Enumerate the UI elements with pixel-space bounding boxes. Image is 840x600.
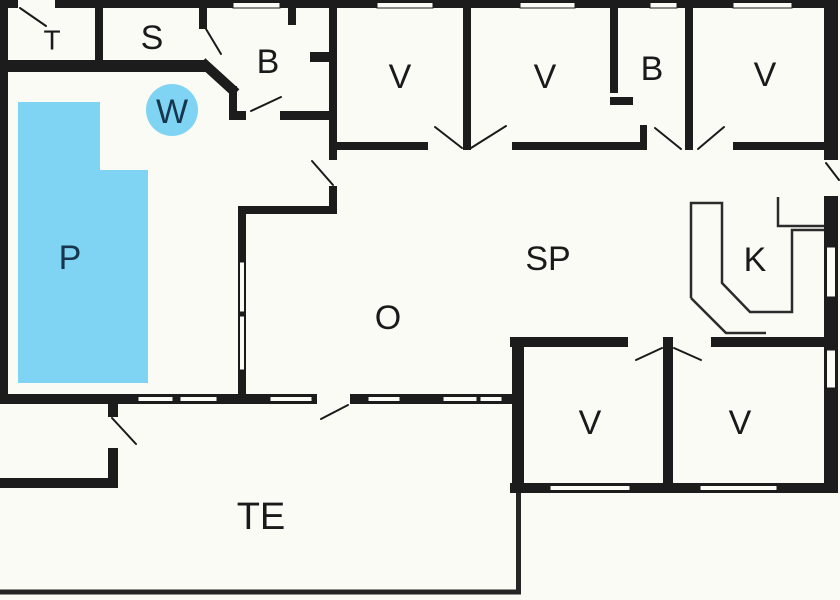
room-label-dining: SP xyxy=(525,240,570,278)
room-label-toilet: T xyxy=(43,25,60,56)
room-label-bedroom-ne: V xyxy=(754,56,777,94)
room-label-sauna: S xyxy=(141,19,164,57)
floor-plan-canvas: T S B W P V V B V SP O K V V TE xyxy=(0,0,840,600)
floor-plan: T S B W P V V B V SP O K V V TE xyxy=(0,0,840,600)
room-label-bathroom-right: B xyxy=(641,50,664,88)
room-label-whirlpool: W xyxy=(156,93,188,131)
room-label-bedroom-se: V xyxy=(729,404,752,442)
room-label-bathroom-left: B xyxy=(257,43,280,81)
room-label-pool: P xyxy=(59,239,82,277)
pool-shape xyxy=(18,102,148,383)
room-label-kitchen: K xyxy=(744,241,767,279)
room-label-bedroom-nw: V xyxy=(389,58,412,96)
room-label-terrace: TE xyxy=(237,496,286,538)
room-label-bedroom-sw: V xyxy=(579,404,602,442)
room-label-living: O xyxy=(375,299,401,337)
room-label-bedroom-n: V xyxy=(534,58,557,96)
